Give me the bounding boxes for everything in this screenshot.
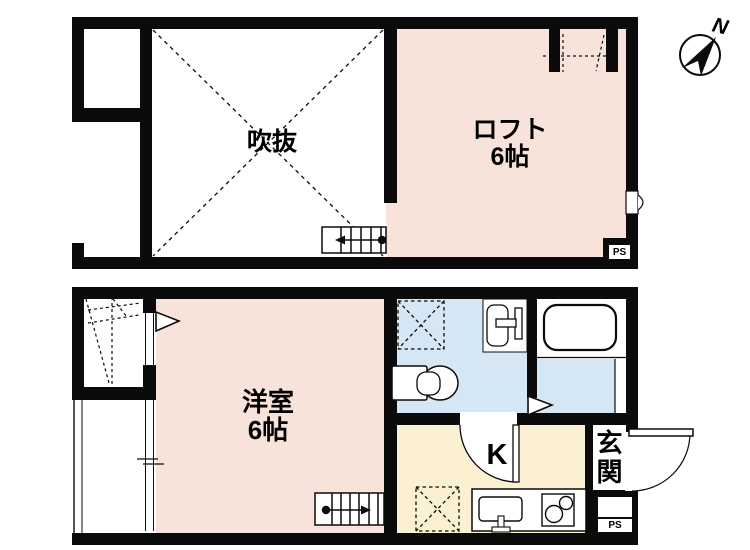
wall bbox=[143, 287, 156, 400]
wall bbox=[606, 17, 618, 72]
western-room-label: 洋室 6帖 bbox=[218, 388, 318, 444]
wall bbox=[72, 387, 156, 400]
bathtub-icon bbox=[544, 305, 616, 350]
wall bbox=[72, 257, 638, 269]
western-room-size: 6帖 bbox=[218, 416, 318, 444]
loft-name: ロフト bbox=[460, 117, 560, 144]
ps-label-upper: PS bbox=[609, 245, 630, 259]
stairs-upper bbox=[322, 227, 386, 253]
compass-n-label: N bbox=[704, 13, 737, 42]
void-room-label: 吹抜 bbox=[222, 129, 322, 156]
wall bbox=[586, 490, 638, 545]
floor-plan: 吹抜 ロフト 6帖 洋室 6帖 K 玄関 PS PS N bbox=[0, 0, 750, 550]
western-room-name: 洋室 bbox=[218, 388, 318, 416]
wall bbox=[549, 17, 560, 72]
wall bbox=[384, 17, 397, 203]
kitchen-label: K bbox=[472, 440, 522, 471]
wall bbox=[140, 17, 152, 258]
wall bbox=[72, 287, 84, 400]
closet-ladder bbox=[86, 297, 141, 384]
door-swing-entrance bbox=[629, 429, 693, 491]
wall bbox=[72, 108, 143, 122]
washroom-floor bbox=[397, 299, 527, 413]
loft-size: 6帖 bbox=[460, 144, 560, 171]
loft-room-label: ロフト 6帖 bbox=[460, 117, 560, 171]
entrance-label: 玄関 bbox=[594, 429, 625, 487]
wall bbox=[384, 287, 397, 533]
changing-area-floor bbox=[537, 359, 615, 413]
balcony-rail bbox=[74, 400, 82, 533]
compass-north-icon bbox=[680, 35, 720, 76]
ps-label-lower: PS bbox=[598, 519, 632, 532]
wall bbox=[384, 413, 638, 425]
wall bbox=[527, 287, 537, 398]
wall bbox=[72, 533, 638, 545]
wall bbox=[72, 243, 84, 269]
wall bbox=[72, 287, 638, 299]
wall bbox=[72, 17, 84, 120]
wall bbox=[626, 17, 638, 269]
